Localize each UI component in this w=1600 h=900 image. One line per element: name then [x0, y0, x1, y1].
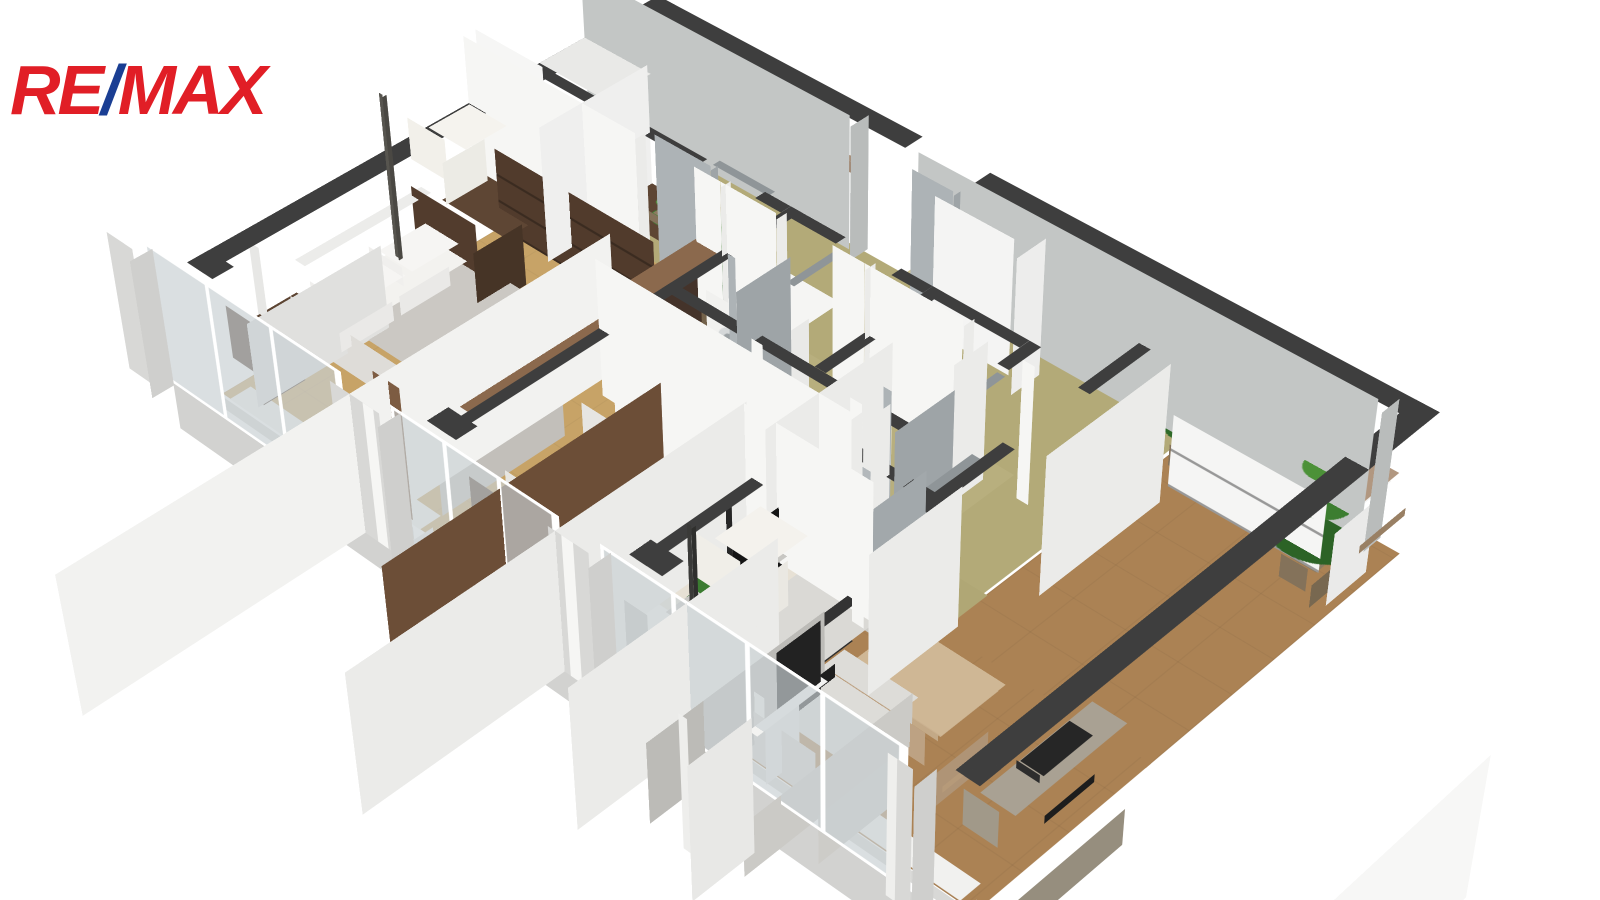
- floor-plan-3d: [207, 122, 1420, 900]
- wall-sw-4: [911, 769, 937, 900]
- floor-plan-scene: [0, 0, 1600, 900]
- wall-ne-left: [850, 115, 869, 261]
- wall-corridor-living-2: [852, 481, 865, 629]
- page: RE/MAX: [0, 0, 1600, 900]
- wall-sw-4: [895, 759, 913, 900]
